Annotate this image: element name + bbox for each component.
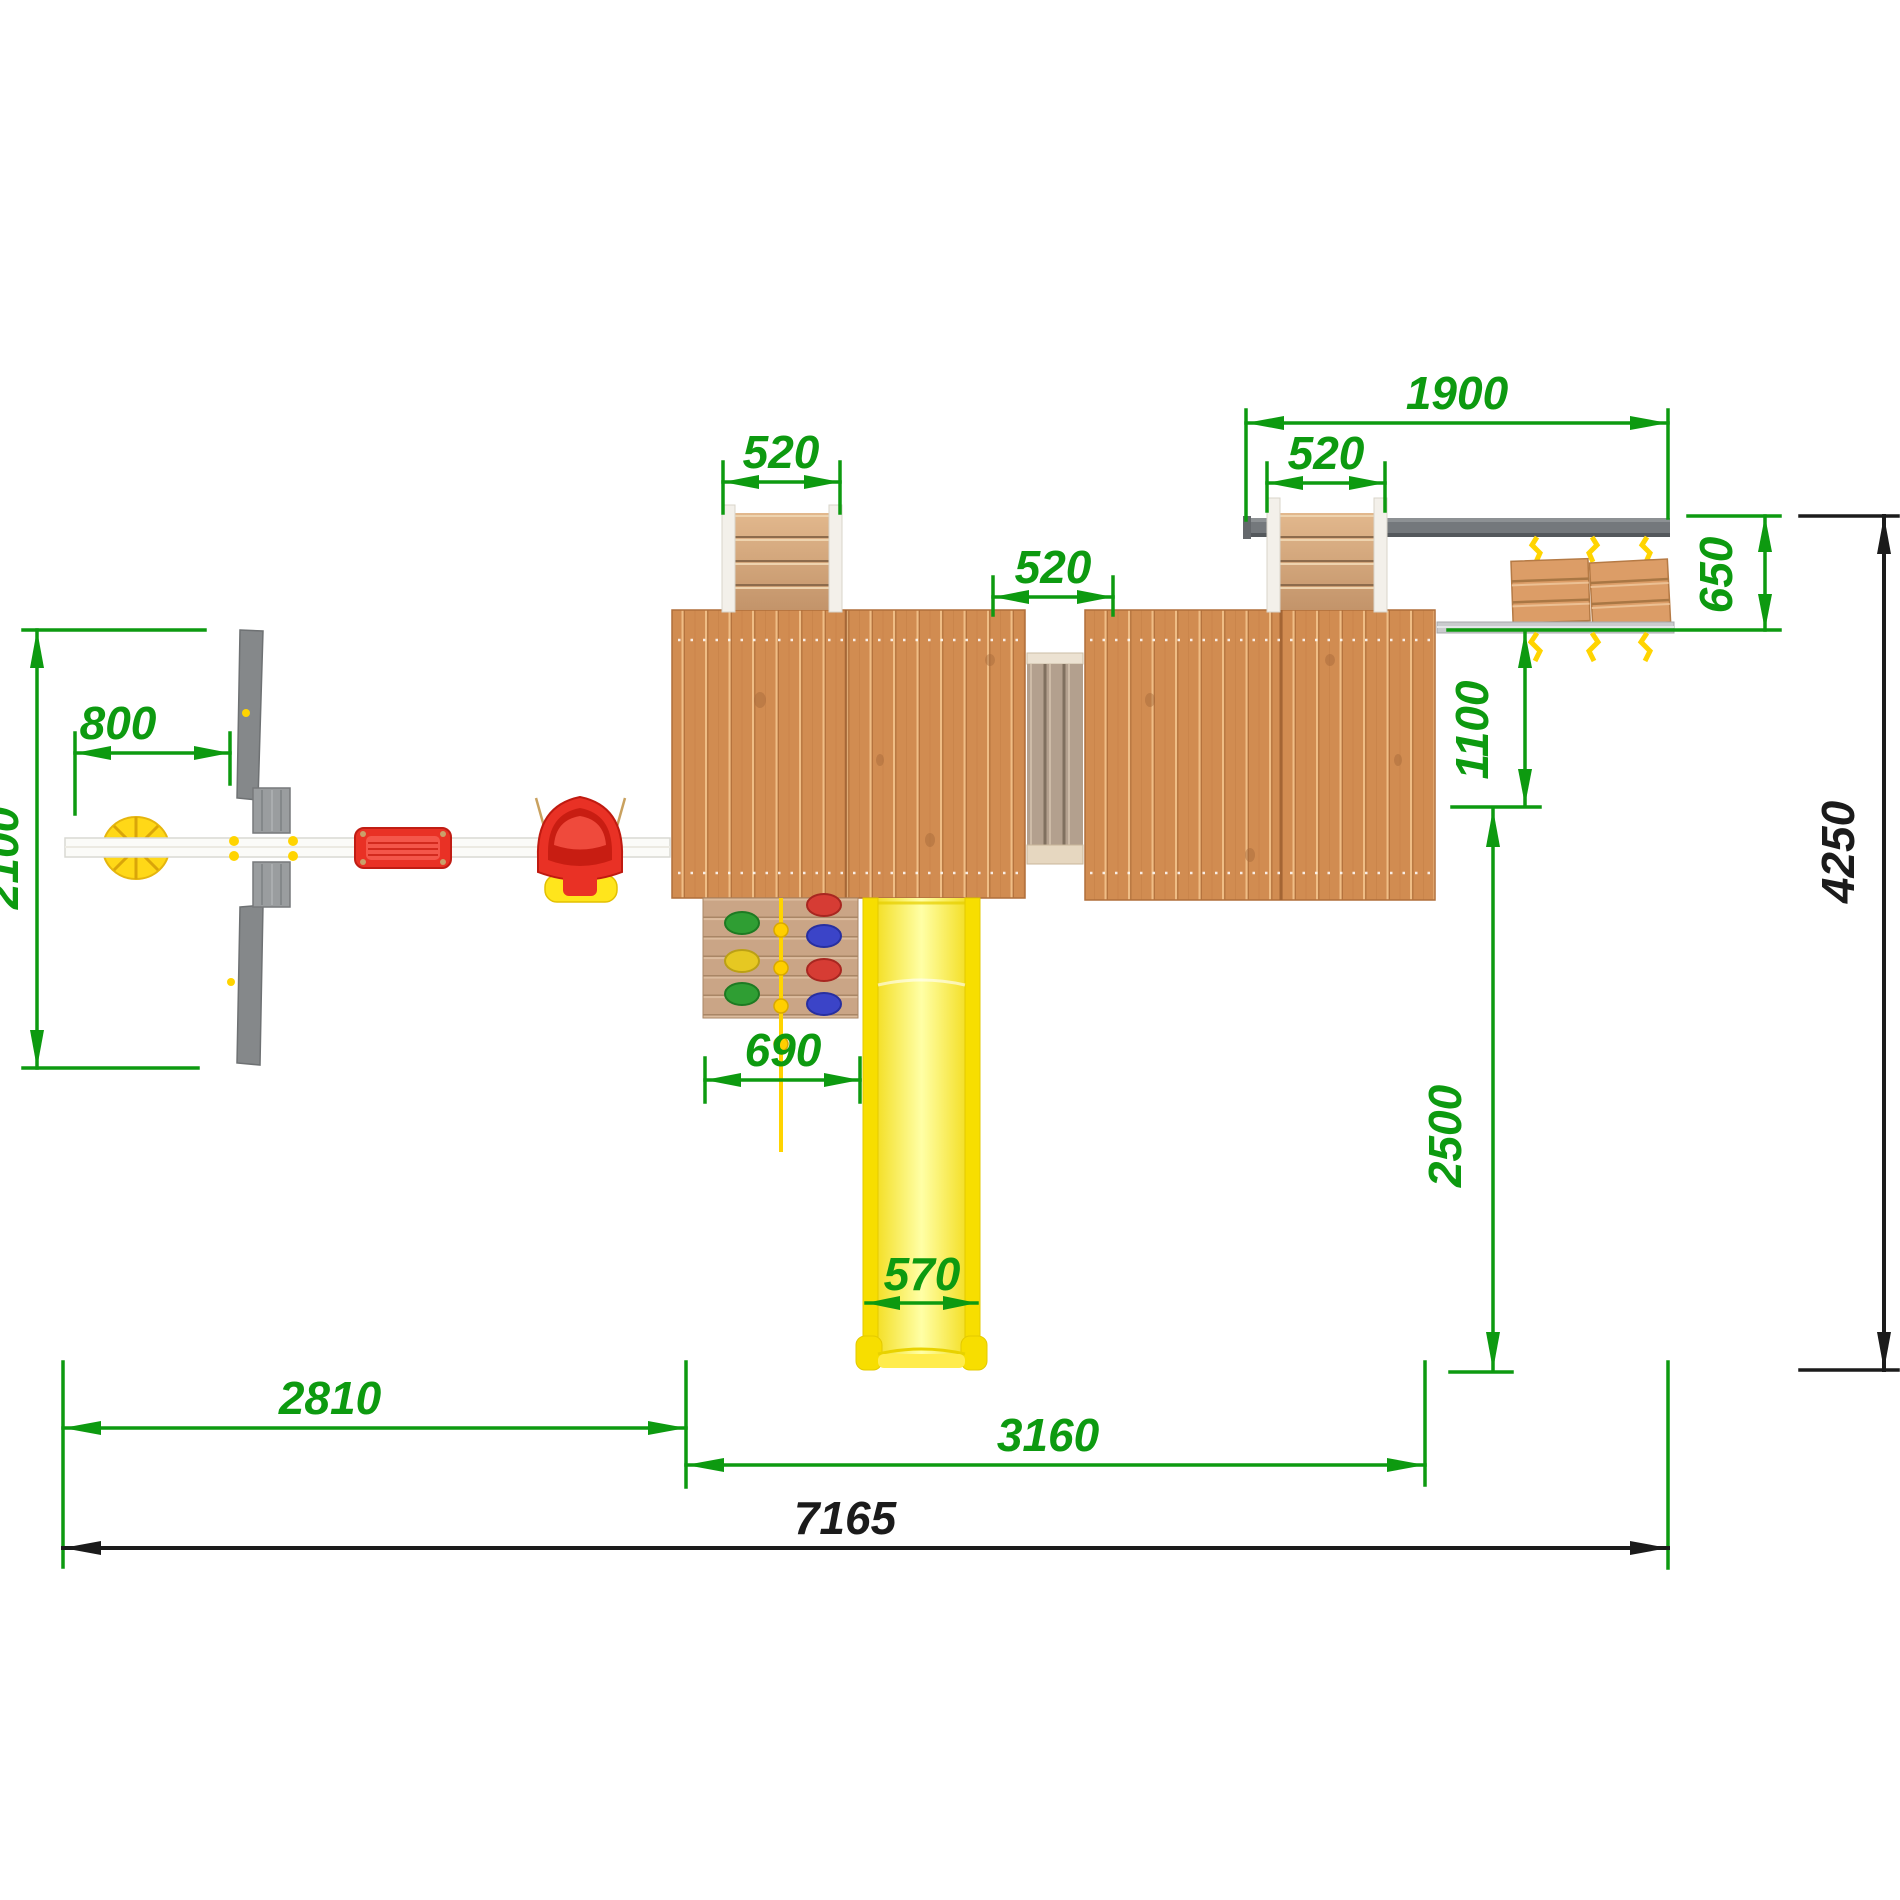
dim-swing-beam: 1900 — [1246, 367, 1668, 430]
dim-slide-width-label: 570 — [884, 1248, 961, 1300]
dim-frame-depth: 2100 — [0, 630, 44, 1068]
swing-rope-ends — [1531, 633, 1650, 661]
platform-left — [672, 610, 1025, 898]
bridge — [1027, 653, 1083, 864]
toddler-swing-seat — [536, 797, 625, 902]
dim-stair-left-label: 520 — [743, 426, 820, 478]
dim-total-width-label: 7165 — [794, 1492, 898, 1544]
dim-climbing-wall-label: 690 — [745, 1024, 822, 1076]
structure — [65, 498, 1674, 1370]
dim-beam-overhang-label: 800 — [80, 697, 157, 749]
swing-seat-left — [1511, 559, 1590, 624]
dim-left-section-label: 2810 — [278, 1372, 382, 1424]
dim-beam-to-rail: 650 — [1690, 516, 1772, 630]
playground-plan-drawing: 520 520 520 1900 800 — [0, 0, 1900, 1900]
dim-stair-right-label: 520 — [1288, 427, 1365, 479]
drawing-canvas: 520 520 520 1900 800 — [0, 0, 1900, 1900]
dim-platform-section: 3160 — [686, 1409, 1425, 1472]
dim-total-depth-label: 4250 — [1812, 800, 1864, 904]
dim-beam-overhang: 800 — [75, 697, 230, 760]
swing-ropes — [1532, 537, 1650, 562]
dim-total-width: 7165 — [63, 1492, 1668, 1555]
a-frame-leg-bottom — [237, 862, 290, 1065]
dim-bridge: 520 — [993, 541, 1113, 604]
ladder-top-left — [722, 505, 842, 612]
dim-total-depth: 4250 — [1812, 516, 1891, 1370]
a-frame-leg-top — [237, 630, 290, 833]
platform-right — [1085, 610, 1435, 900]
dim-platform-section-label: 3160 — [997, 1409, 1100, 1461]
dim-beam-to-rail-label: 650 — [1690, 536, 1742, 613]
dim-left-section: 2810 — [63, 1372, 686, 1435]
ladder-top-right — [1267, 498, 1387, 612]
dim-bridge-label: 520 — [1015, 541, 1092, 593]
dim-stair-right: 520 — [1267, 427, 1385, 490]
dim-safety-zone-label: 2500 — [1419, 1084, 1471, 1188]
flat-swing-seat — [355, 828, 451, 868]
dim-rail-to-platform: 1100 — [1446, 632, 1532, 805]
dim-rail-to-platform-label: 1100 — [1446, 680, 1498, 779]
dim-frame-depth-label: 2100 — [0, 806, 28, 910]
swing-seat-right — [1589, 559, 1670, 626]
dim-stair-left: 520 — [723, 426, 840, 489]
dim-swing-beam-label: 1900 — [1406, 367, 1509, 419]
